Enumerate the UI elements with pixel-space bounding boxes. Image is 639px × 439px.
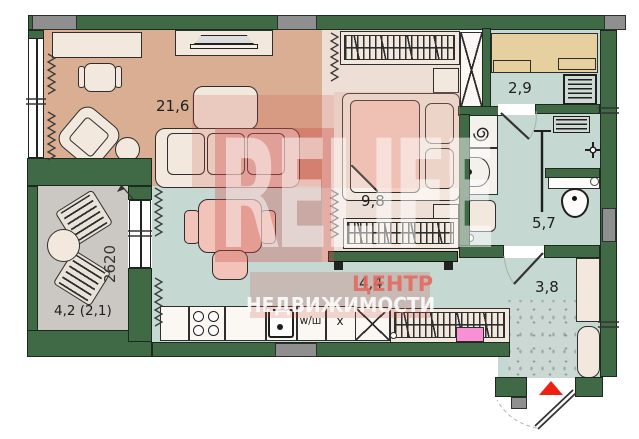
dressing-area-label: 2,9 — [508, 79, 532, 97]
kitchen-area-label: 4,4 — [359, 274, 383, 292]
living-room-area-label: 21,6 — [156, 97, 189, 115]
balcony-width-dimension: 2620 — [101, 234, 119, 294]
wall-tick — [128, 231, 152, 236]
balcony-area-label: 4,2 (2,1) — [54, 303, 112, 319]
curtain-symbol — [331, 190, 338, 238]
bedroom-area-label: 9,8 — [361, 192, 385, 210]
curtain-symbol — [48, 112, 55, 160]
dressing-door-leaf — [501, 113, 529, 139]
wall-tick — [598, 108, 619, 113]
curtain-symbol — [48, 54, 55, 94]
wall-tick — [26, 99, 46, 104]
hallway-area-label: 3,8 — [535, 278, 559, 296]
curtain-symbol — [155, 188, 162, 236]
wall-tick — [598, 322, 619, 327]
floor-plan: w/ш х — [0, 0, 639, 439]
shower-mixer-icon — [590, 147, 596, 153]
entrance-door-leaf — [535, 390, 576, 429]
balcony-door-arrow — [117, 185, 125, 192]
dressing-door-swing-arc — [529, 111, 536, 139]
entrance-door-swing-arc — [497, 400, 537, 428]
curtain-symbol — [155, 278, 162, 326]
curtain-symbol — [331, 33, 338, 81]
bathroom-door-swing-arc — [504, 256, 514, 284]
washing-machine-spiral-icon — [474, 128, 488, 140]
bathroom-area-label: 5,7 — [532, 214, 556, 232]
